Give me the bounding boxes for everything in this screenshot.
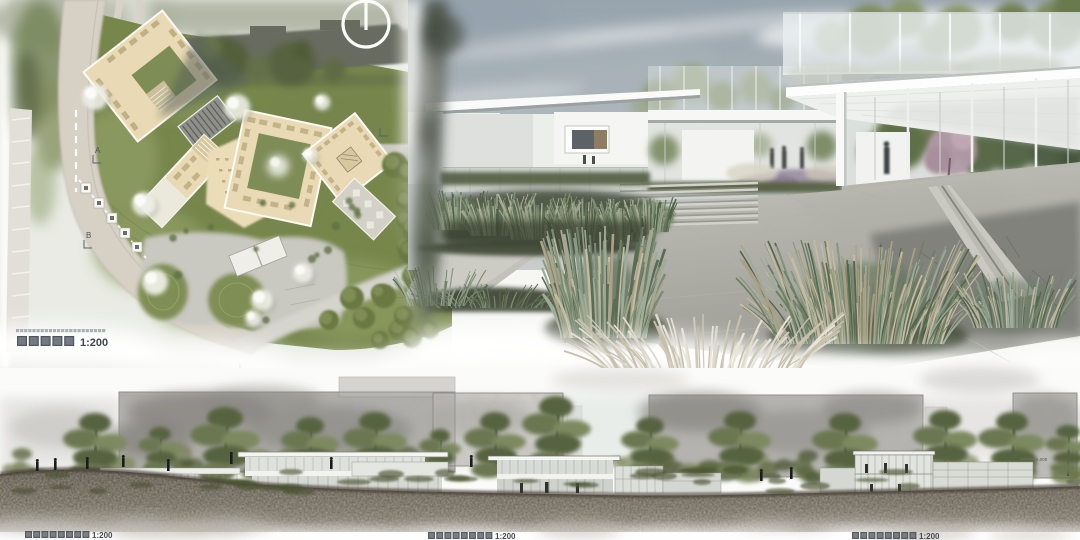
svg-text:A: A [95, 146, 101, 155]
svg-text:1:200: 1:200 [919, 532, 940, 540]
svg-text:5.000: 5.000 [1036, 457, 1048, 462]
svg-text:B: B [86, 231, 91, 240]
svg-text:1:200: 1:200 [92, 531, 113, 540]
svg-text:1:200: 1:200 [80, 337, 108, 349]
svg-text:1:200: 1:200 [495, 532, 516, 540]
